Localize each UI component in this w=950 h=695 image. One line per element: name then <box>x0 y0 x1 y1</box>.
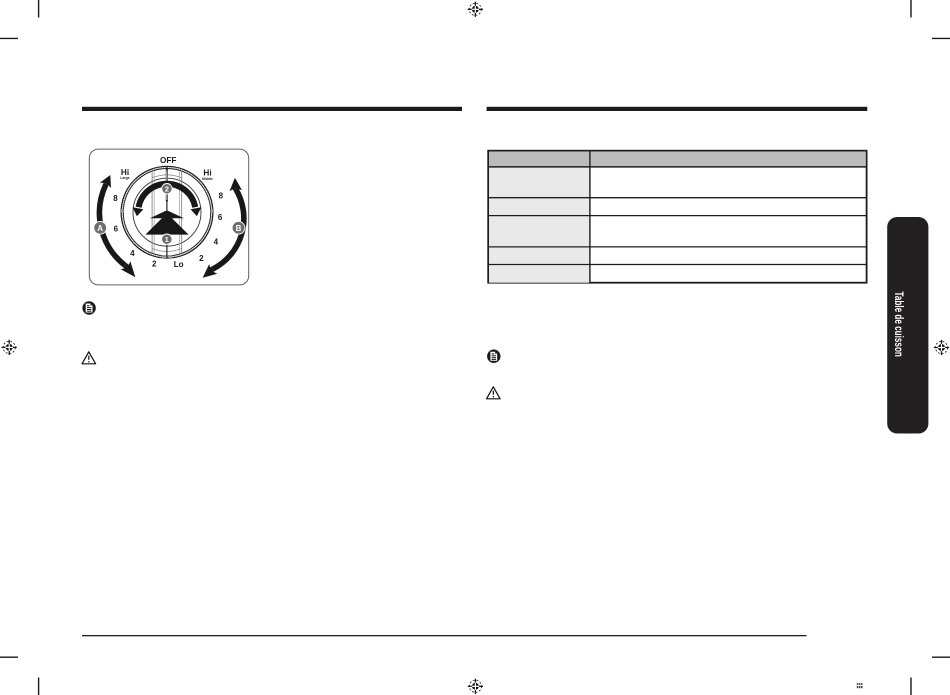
svg-text:Large: Large <box>120 176 129 180</box>
svg-text:B: B <box>236 224 242 233</box>
svg-text:4: 4 <box>130 249 135 258</box>
svg-text:4: 4 <box>214 238 219 247</box>
svg-text:OFF: OFF <box>160 156 176 165</box>
svg-text:6: 6 <box>114 224 119 233</box>
svg-text:6: 6 <box>218 213 223 222</box>
svg-text:Middle: Middle <box>202 177 213 181</box>
svg-text:Lo: Lo <box>174 260 184 269</box>
svg-text:A: A <box>97 224 103 233</box>
svg-text:8: 8 <box>219 191 224 200</box>
svg-text:2: 2 <box>152 259 157 268</box>
svg-text:8: 8 <box>113 194 118 203</box>
svg-text:2: 2 <box>199 254 204 263</box>
svg-text:2: 2 <box>165 185 169 194</box>
svg-text:Table de cuisson: Table de cuisson <box>891 292 904 357</box>
